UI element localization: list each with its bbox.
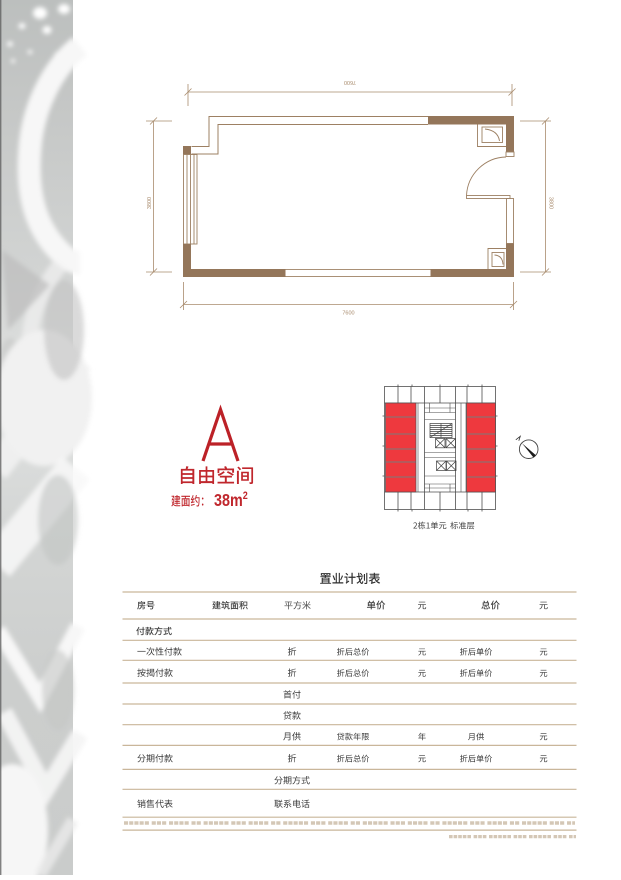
svg-text:7600: 7600 [342,311,354,317]
svg-text:3800: 3800 [147,197,153,209]
svg-text:3800: 3800 [548,197,554,209]
svg-text:7600: 7600 [344,79,356,85]
